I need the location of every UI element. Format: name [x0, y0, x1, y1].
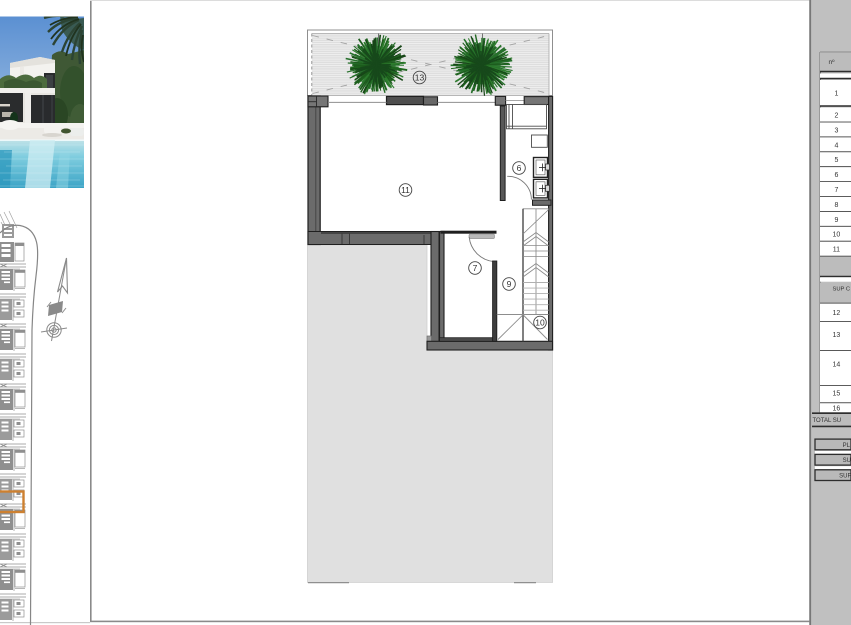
- svg-text:TOTAL SU: TOTAL SU: [813, 418, 842, 424]
- svg-text:7: 7: [834, 187, 838, 194]
- svg-text:4: 4: [834, 142, 838, 149]
- svg-text:6: 6: [834, 172, 838, 179]
- svg-text:9: 9: [834, 217, 838, 224]
- svg-text:5: 5: [834, 157, 838, 164]
- svg-text:7: 7: [473, 263, 478, 273]
- svg-text:16: 16: [833, 406, 841, 413]
- svg-text:10: 10: [833, 232, 841, 239]
- svg-text:SUP C: SUP C: [833, 287, 851, 293]
- svg-text:nº: nº: [829, 59, 836, 66]
- svg-text:2: 2: [834, 113, 838, 120]
- svg-text:11: 11: [833, 247, 840, 254]
- svg-text:3: 3: [834, 127, 838, 134]
- svg-text:12: 12: [833, 310, 841, 317]
- svg-text:10: 10: [535, 318, 545, 328]
- svg-text:13: 13: [833, 332, 841, 339]
- svg-text:13: 13: [415, 73, 425, 83]
- svg-text:SU: SU: [843, 458, 851, 464]
- svg-text:6: 6: [517, 163, 522, 173]
- svg-text:1: 1: [834, 91, 838, 98]
- svg-text:14: 14: [833, 362, 841, 369]
- svg-text:15: 15: [833, 391, 841, 398]
- svg-text:PL: PL: [843, 443, 851, 449]
- svg-text:8: 8: [834, 202, 838, 209]
- svg-text:SUP: SUP: [839, 474, 851, 480]
- svg-text:9: 9: [507, 279, 512, 289]
- svg-text:11: 11: [401, 185, 410, 195]
